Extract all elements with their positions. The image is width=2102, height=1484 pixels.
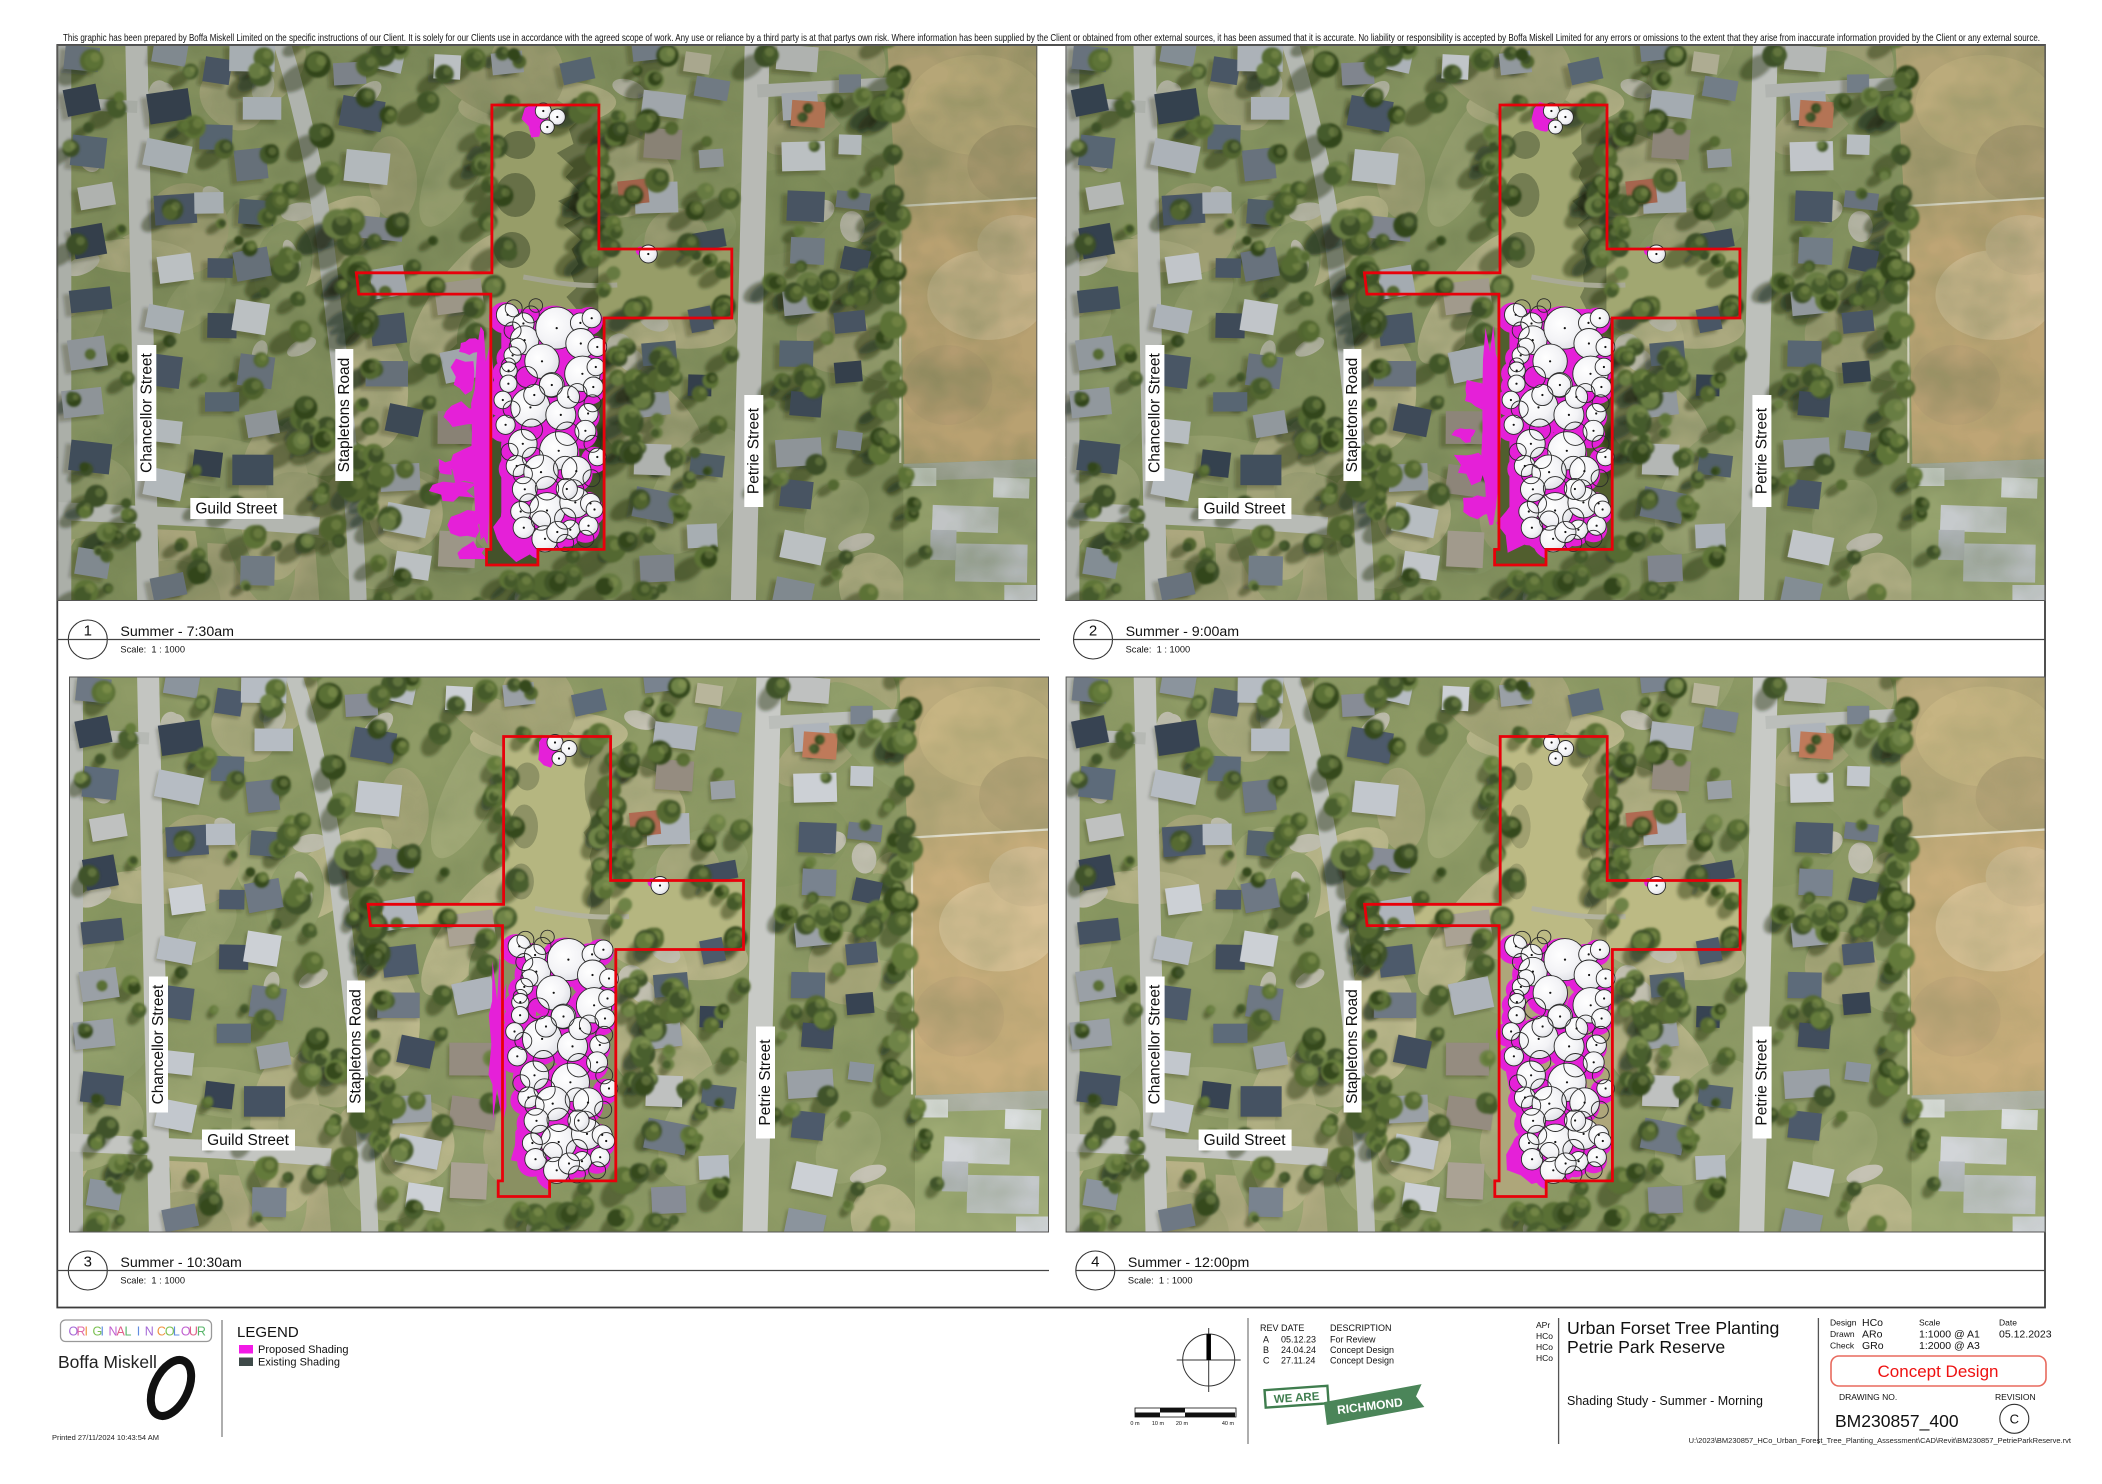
- svg-text:I: I: [85, 1325, 88, 1339]
- svg-text:I: I: [137, 1325, 140, 1339]
- svg-text:C: C: [1263, 1356, 1270, 1366]
- svg-text:Scale: 1 : 1000: Scale: 1 : 1000: [120, 645, 185, 655]
- svg-text:Scale: 1 : 1000: Scale: 1 : 1000: [1128, 1276, 1193, 1286]
- svg-text:Summer - 12:00pm: Summer - 12:00pm: [1128, 1255, 1249, 1271]
- svg-text:Summer - 10:30am: Summer - 10:30am: [120, 1255, 241, 1271]
- svg-text:Check: Check: [1830, 1341, 1855, 1351]
- svg-text:B: B: [1263, 1345, 1269, 1355]
- svg-text:A: A: [1263, 1335, 1269, 1345]
- svg-text:I: I: [101, 1325, 104, 1339]
- svg-text:HCo: HCo: [1536, 1342, 1553, 1352]
- svg-text:Petrie Park Reserve: Petrie Park Reserve: [1567, 1337, 1725, 1357]
- svg-text:This graphic has been prepared: This graphic has been prepared by Boffa …: [63, 32, 2040, 44]
- svg-text:DRAWING NO.: DRAWING NO.: [1839, 1392, 1897, 1402]
- svg-text:DESCRIPTION: DESCRIPTION: [1330, 1323, 1392, 1333]
- svg-text:Date: Date: [1999, 1318, 2017, 1328]
- svg-text:C: C: [2010, 1412, 2019, 1427]
- svg-text:3: 3: [84, 1254, 92, 1271]
- svg-text:R: R: [197, 1325, 206, 1339]
- svg-text:Printed 27/11/2024 10:43:54 AM: Printed 27/11/2024 10:43:54 AM: [52, 1433, 159, 1442]
- svg-text:0 m: 0 m: [1130, 1421, 1140, 1427]
- svg-text:Scale: 1 : 1000: Scale: 1 : 1000: [1126, 645, 1191, 655]
- svg-text:REVISION: REVISION: [1995, 1392, 2036, 1402]
- svg-text:2: 2: [1089, 623, 1097, 640]
- svg-text:Concept Design: Concept Design: [1330, 1345, 1394, 1355]
- svg-text:1:1000 @ A1: 1:1000 @ A1: [1919, 1329, 1980, 1341]
- svg-text:Scale: 1 : 1000: Scale: 1 : 1000: [120, 1276, 185, 1286]
- svg-text:1: 1: [84, 623, 92, 640]
- svg-text:4: 4: [1091, 1254, 1099, 1271]
- svg-text:HCo: HCo: [1862, 1317, 1883, 1329]
- svg-text:LEGEND: LEGEND: [237, 1324, 299, 1341]
- svg-text:ARo: ARo: [1862, 1329, 1883, 1341]
- svg-text:Scale: Scale: [1919, 1318, 1941, 1328]
- svg-text:05.12.2023: 05.12.2023: [1999, 1329, 2052, 1341]
- svg-text:24.04.24: 24.04.24: [1281, 1345, 1316, 1355]
- svg-text:HCo: HCo: [1536, 1353, 1553, 1363]
- svg-text:APr: APr: [1536, 1320, 1550, 1330]
- svg-text:Concept Design: Concept Design: [1330, 1356, 1394, 1366]
- svg-text:GRo: GRo: [1862, 1340, 1884, 1352]
- svg-text:Proposed Shading: Proposed Shading: [258, 1344, 349, 1356]
- svg-text:DATE: DATE: [1281, 1323, 1304, 1333]
- svg-text:Design: Design: [1830, 1318, 1857, 1328]
- svg-text:Summer - 7:30am: Summer - 7:30am: [120, 624, 234, 640]
- svg-text:U:\2023\BM230857_HCo_Urban_For: U:\2023\BM230857_HCo_Urban_Forest_Tree_P…: [1689, 1436, 2072, 1445]
- svg-text:HCo: HCo: [1536, 1331, 1553, 1341]
- svg-text:10 m: 10 m: [1152, 1421, 1165, 1427]
- svg-text:BM230857_400: BM230857_400: [1835, 1411, 1959, 1432]
- svg-text:Drawn: Drawn: [1830, 1329, 1855, 1339]
- svg-text:Concept Design: Concept Design: [1878, 1362, 1999, 1381]
- svg-text:27.11.24: 27.11.24: [1281, 1356, 1315, 1366]
- svg-text:40 m: 40 m: [1222, 1421, 1235, 1427]
- svg-text:For Review: For Review: [1330, 1335, 1376, 1345]
- svg-text:Summer - 9:00am: Summer - 9:00am: [1126, 624, 1240, 640]
- svg-text:Boffa Miskell: Boffa Miskell: [58, 1352, 157, 1372]
- svg-text:Shading Study - Summer - Morni: Shading Study - Summer - Morning: [1567, 1394, 1763, 1408]
- svg-text:1:2000 @ A3: 1:2000 @ A3: [1919, 1340, 1980, 1352]
- svg-text:REV: REV: [1260, 1323, 1279, 1333]
- svg-text:Existing Shading: Existing Shading: [258, 1357, 340, 1369]
- svg-text:N: N: [145, 1325, 154, 1339]
- svg-text:Urban Forset Tree Planting: Urban Forset Tree Planting: [1567, 1318, 1779, 1338]
- svg-text:L: L: [173, 1325, 180, 1339]
- svg-text:L: L: [125, 1325, 132, 1339]
- svg-text:05.12.23: 05.12.23: [1281, 1335, 1316, 1345]
- svg-text:20 m: 20 m: [1176, 1421, 1189, 1427]
